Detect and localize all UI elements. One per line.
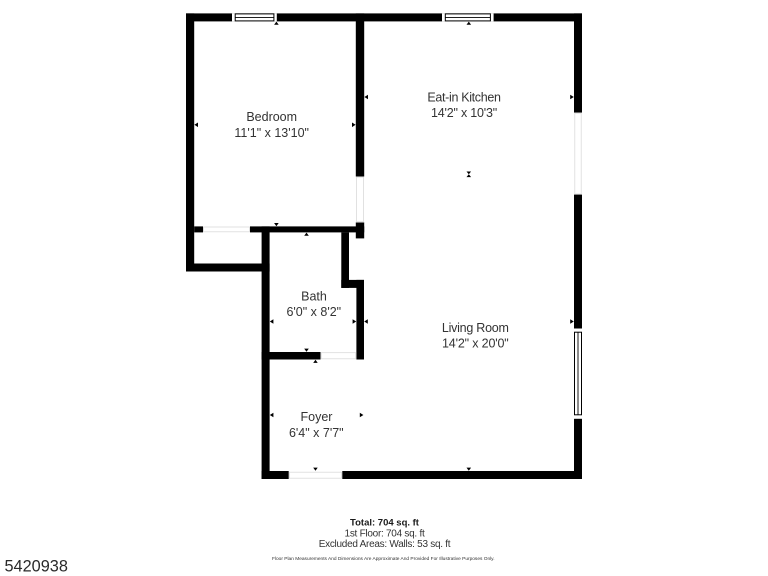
svg-text:Eat-in Kitchen: Eat-in Kitchen (427, 90, 501, 104)
svg-text:Foyer: Foyer (301, 410, 333, 424)
svg-text:Excluded Areas: Walls: 53 sq.: Excluded Areas: Walls: 53 sq. ft (319, 539, 451, 550)
svg-text:14'2" x 20'0": 14'2" x 20'0" (442, 337, 509, 351)
svg-text:6'4" x 7'7": 6'4" x 7'7" (289, 426, 344, 440)
svg-text:5420938: 5420938 (5, 557, 68, 575)
svg-text:Bath: Bath (301, 289, 327, 303)
svg-text:11'1" x 13'10": 11'1" x 13'10" (234, 126, 309, 140)
svg-text:Floor Plan Measurements And Di: Floor Plan Measurements And Dimensions A… (272, 556, 495, 562)
svg-text:6'0" x 8'2": 6'0" x 8'2" (286, 305, 341, 319)
svg-text:14'2" x 10'3": 14'2" x 10'3" (431, 106, 497, 120)
svg-text:Total: 704 sq. ft: Total: 704 sq. ft (350, 518, 420, 529)
svg-text:Living Room: Living Room (442, 321, 509, 335)
svg-text:Bedroom: Bedroom (246, 110, 297, 124)
svg-text:1st Floor: 704 sq. ft: 1st Floor: 704 sq. ft (345, 528, 425, 539)
